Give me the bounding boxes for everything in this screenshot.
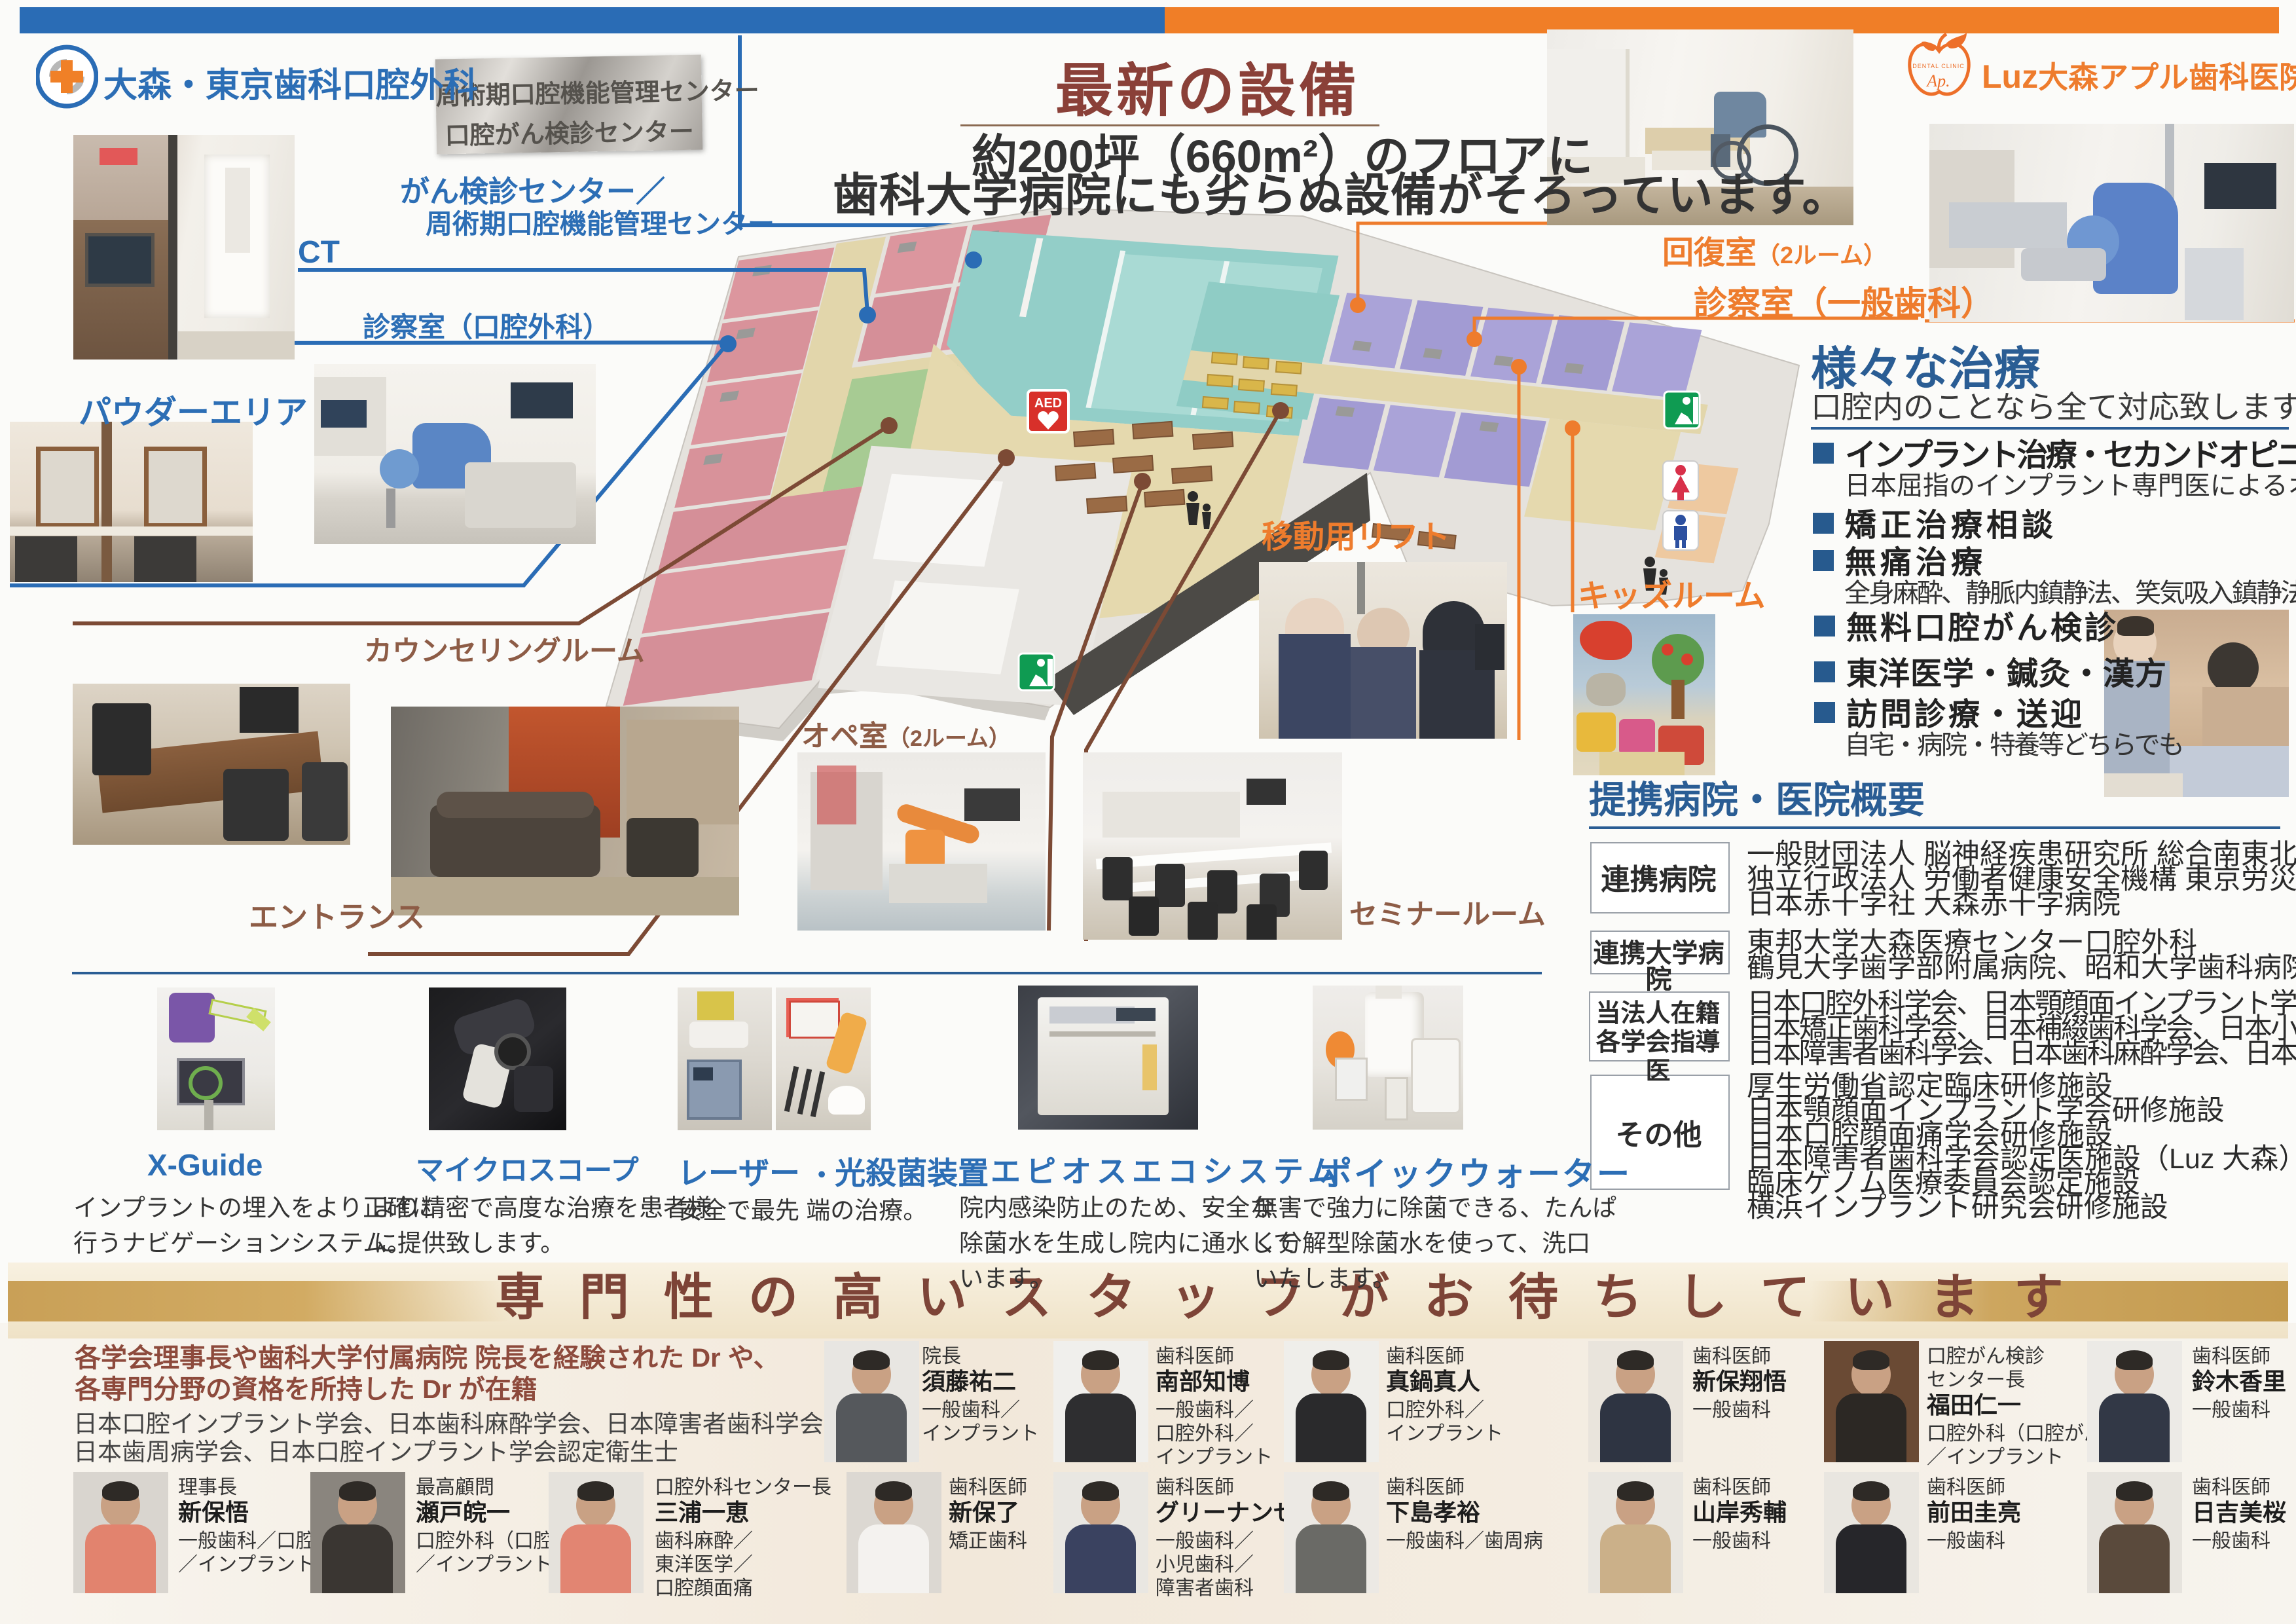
svg-text:AED: AED [1034,396,1062,411]
